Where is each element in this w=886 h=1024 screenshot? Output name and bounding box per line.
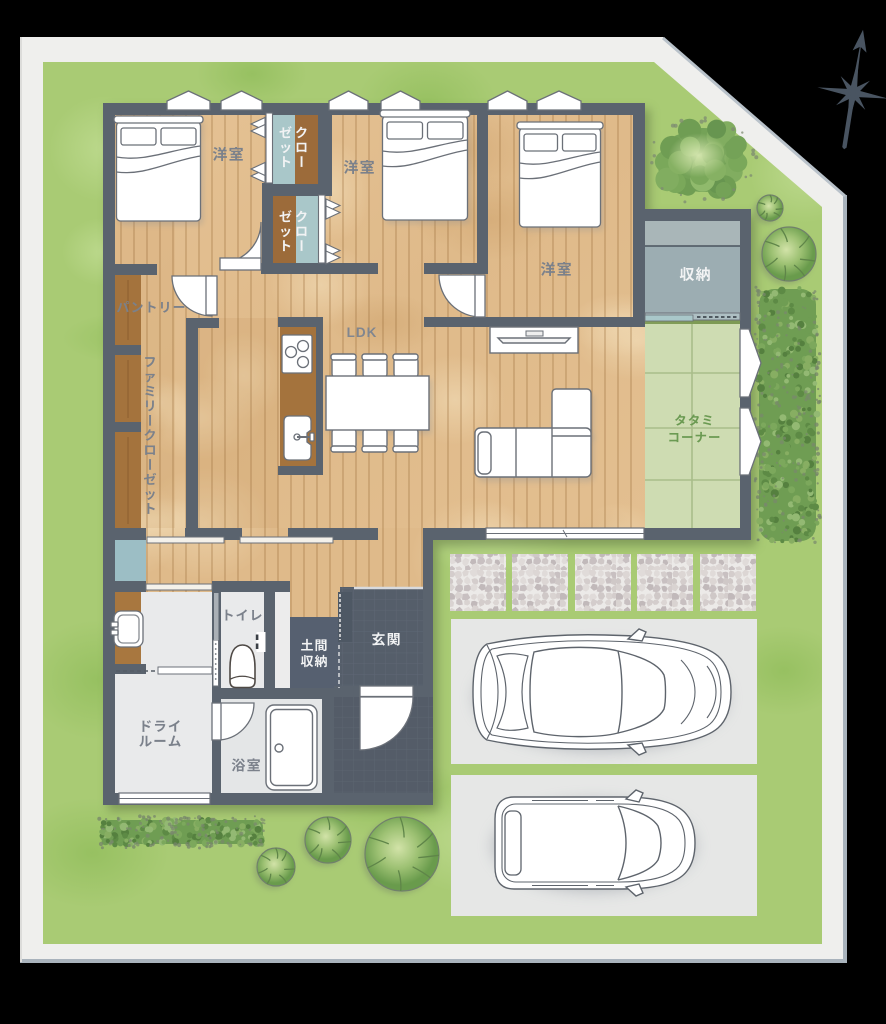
svg-text:LDK: LDK <box>347 325 378 340</box>
